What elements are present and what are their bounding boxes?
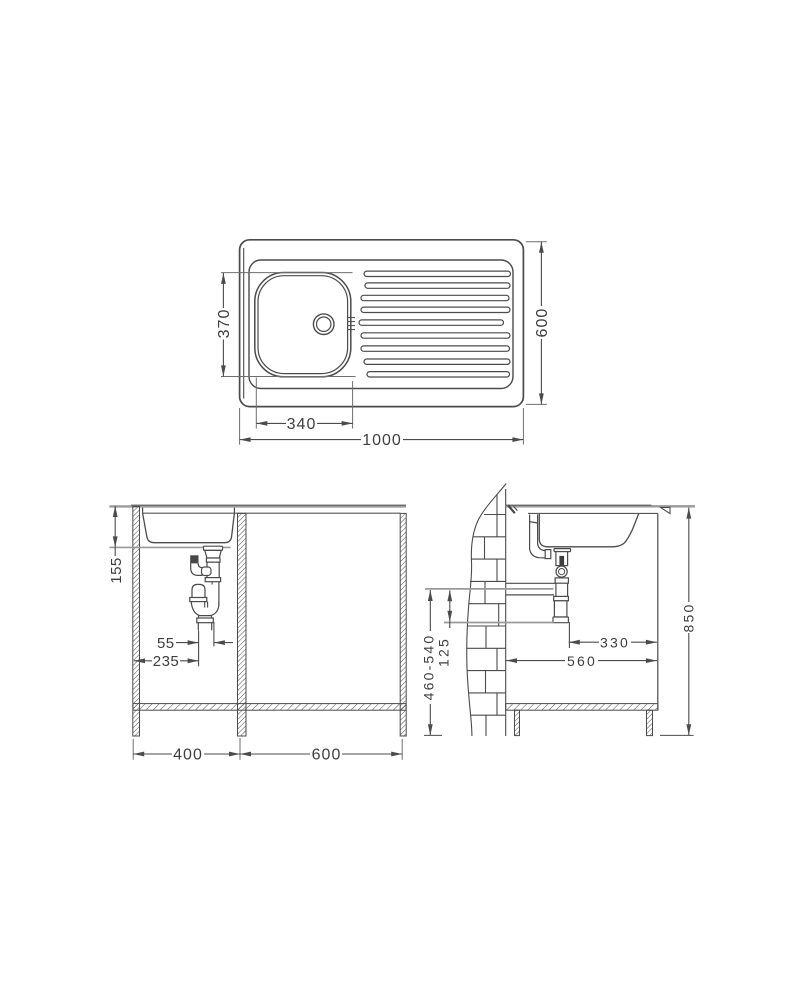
svg-text:235: 235	[153, 653, 180, 670]
svg-text:850: 850	[681, 603, 697, 633]
svg-text:600: 600	[312, 747, 342, 764]
svg-text:460-540: 460-540	[421, 634, 437, 701]
svg-text:400: 400	[173, 747, 203, 764]
svg-text:340: 340	[287, 416, 317, 433]
svg-text:330: 330	[600, 635, 630, 651]
svg-text:55: 55	[157, 635, 175, 652]
svg-text:125: 125	[435, 637, 451, 667]
svg-text:1000: 1000	[362, 432, 402, 449]
svg-text:600: 600	[534, 308, 551, 338]
svg-text:155: 155	[108, 557, 125, 584]
svg-text:560: 560	[567, 653, 597, 669]
svg-text:370: 370	[216, 309, 233, 339]
